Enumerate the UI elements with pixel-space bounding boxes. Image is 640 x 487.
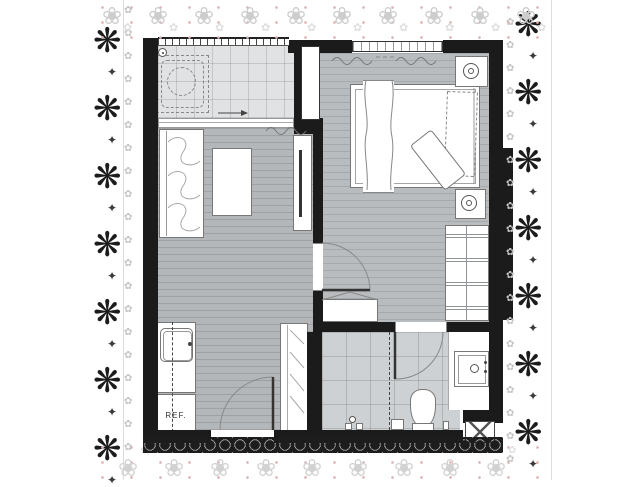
lace-ornament: ✦: [107, 338, 117, 350]
bedroom-window: [352, 41, 443, 52]
lace-ornament: ✿: [506, 18, 514, 28]
bedroom-side-window: [301, 46, 320, 120]
lace-ornament: ❀: [470, 4, 490, 28]
lace-ornament: ✿: [506, 41, 514, 51]
lace-ornament: ✿: [506, 340, 514, 350]
lace-ornament: ✿: [353, 22, 362, 33]
nightstand-bottom-lamp-inner: [466, 200, 472, 206]
lace-ornament: ✿: [124, 98, 132, 108]
lace-ornament: ❀: [210, 456, 230, 480]
lace-ornament: ✿: [124, 167, 132, 177]
shower-head-icon: [349, 416, 356, 423]
lace-ornament: ✿: [506, 409, 514, 419]
lace-ornament: ✿: [124, 6, 132, 16]
lace-ornament: ✿: [445, 22, 454, 33]
lace-ornament: ❋: [93, 160, 122, 194]
lace-ornament: ❀: [118, 456, 138, 480]
lace-ornament: ✦: [107, 270, 117, 282]
kitchen-faucet-icon: [188, 342, 192, 346]
lace-ornament: ❀: [102, 4, 122, 28]
vanity-faucet-icon: [470, 364, 479, 373]
lace-ornament: ✦: [528, 50, 538, 62]
lace-ornament: ✿: [307, 22, 316, 33]
lace-ornament: ❋: [93, 296, 122, 330]
wall-top-right: [443, 40, 490, 53]
lace-ornament: ❀: [194, 4, 214, 28]
washing-machine-drum-icon: [167, 67, 196, 96]
lace-ornament: ❋: [514, 8, 543, 42]
wall-left: [143, 38, 158, 443]
lace-ornament: ❋: [514, 212, 543, 246]
lace-ornament: ✿: [491, 22, 500, 33]
lace-ornament: ✿: [124, 259, 132, 269]
lace-ornament: ❀: [440, 456, 460, 480]
lace-ornament: ✿: [506, 110, 514, 120]
lace-ornament: ✿: [124, 144, 132, 154]
lace-ornament: ❋: [514, 144, 543, 178]
shower-drain-box: [391, 419, 404, 430]
lace-ornament: ✿: [124, 420, 132, 430]
lace-ornament: ✦: [528, 390, 538, 402]
lace-ornament: ❀: [486, 456, 506, 480]
shower-mixer-left: [345, 423, 352, 430]
lace-border-left: ❋✦❋✦❋✦❋✦❋✦❋✦❋✦✿✿✿✿✿✿✿✿✿✿✿✿✿✿✿✿✿✿✿✿: [88, 0, 135, 480]
lace-ornament: ✿: [124, 190, 132, 200]
tv-console: [293, 135, 312, 231]
lace-ornament: ✦: [528, 254, 538, 266]
bedroom-door-opening: [313, 243, 323, 291]
lace-ornament: ❀: [256, 456, 276, 480]
entry-closet: [280, 323, 308, 437]
lace-ornament: ✦: [107, 134, 117, 146]
bedroom-entry-cabinet: [322, 299, 378, 322]
lace-ornament: ✿: [124, 121, 132, 131]
lace-ornament: ✿: [123, 22, 132, 33]
lace-ornament: ✿: [506, 363, 514, 373]
lace-inner-guide-right: [551, 0, 552, 480]
kitchen-sink-basin: [163, 331, 192, 361]
bed-blanket: [363, 80, 394, 193]
lace-ornament: ✿: [506, 432, 514, 442]
lace-ornament: ✿: [261, 22, 270, 33]
lace-ornament: ✿: [124, 213, 132, 223]
lace-ornament: ✿: [124, 443, 132, 453]
lace-ornament: ✦: [107, 474, 117, 486]
nightstand-top-lamp-inner: [468, 68, 474, 74]
lace-ornament: ✿: [124, 305, 132, 315]
lace-ornament: ✦: [528, 186, 538, 198]
bathroom-door-opening: [395, 322, 447, 332]
lace-ornament: ❋: [93, 432, 122, 466]
lace-ornament: ❋: [514, 76, 543, 110]
lace-ornament: ✦: [528, 458, 538, 470]
lace-ornament: ❋: [93, 92, 122, 126]
lace-ornament: ✿: [506, 455, 514, 465]
lace-ornament: ❋: [93, 364, 122, 398]
lace-ornament: ✿: [124, 282, 132, 292]
toilet-bowl-icon: [410, 389, 436, 426]
lace-ornament: ✿: [506, 386, 514, 396]
vanity-tap-dot-2: [484, 370, 487, 373]
lace-ornament: ❀: [302, 456, 322, 480]
lace-ornament: ❋: [514, 280, 543, 314]
balcony-railing: [158, 37, 289, 46]
lace-ornament: ✿: [124, 397, 132, 407]
wall-bedroom-bathroom-right: [447, 322, 490, 332]
lace-ornament: ✿: [537, 22, 546, 33]
entry-closet-divider: [287, 325, 288, 435]
vanity-tap-dot-1: [484, 361, 487, 364]
lace-scallop-row: [143, 437, 503, 453]
lace-ornament: ❀: [148, 4, 168, 28]
tv-panel: [299, 150, 302, 217]
lace-ornament: ✿: [124, 75, 132, 85]
wall-right: [489, 40, 503, 423]
lace-ornament: ❀: [394, 456, 414, 480]
lace-ornament: ❋: [514, 416, 543, 450]
coffee-table: [212, 148, 252, 216]
lace-ornament: ✿: [124, 236, 132, 246]
lace-ornament: ❋: [93, 24, 122, 58]
lace-ornament: ✿: [506, 64, 514, 74]
shower-partition-dashed: [389, 332, 390, 430]
bathroom-floor: [322, 332, 460, 430]
lace-ornament: ✿: [215, 22, 224, 33]
floor-plan-image: REF.: [0, 0, 640, 480]
lace-ornament: ❀: [286, 4, 306, 28]
wall-right-step: [502, 148, 513, 320]
lace-ornament: ✿: [506, 133, 514, 143]
lace-ornament: ❀: [348, 456, 368, 480]
lace-ornament: ❋: [93, 228, 122, 262]
lace-border-top: ❀✿❀✿❀✿❀✿❀✿❀✿❀✿❀✿❀✿❀✿: [88, 0, 552, 40]
wall-bedroom-bathroom-left: [313, 322, 395, 332]
lace-ornament: ❀: [424, 4, 444, 28]
shower-mixer-right: [356, 423, 363, 430]
lace-ornament: ✿: [124, 351, 132, 361]
wall-living-bedroom-lower: [313, 291, 323, 323]
toilet-paper-holder: [443, 421, 449, 430]
sofa-back-line: [166, 131, 167, 236]
lace-ornament: ✦: [107, 406, 117, 418]
lace-ornament: ✦: [107, 202, 117, 214]
lace-ornament: ✿: [124, 52, 132, 62]
lace-ornament: ❋: [514, 348, 543, 382]
lace-ornament: ✿: [124, 374, 132, 384]
lace-ornament: ✦: [528, 118, 538, 130]
wall-bathroom-west: [307, 332, 322, 430]
lace-ornament: ✿: [508, 446, 516, 456]
lace-ornament: ❀: [164, 456, 184, 480]
wall-living-bedroom-upper: [313, 134, 323, 243]
lace-ornament: ✿: [506, 87, 514, 97]
lace-ornament: ✿: [399, 22, 408, 33]
kitchen-upper-cabinet-dashed-line: [172, 322, 173, 437]
lace-ornament: ❀: [516, 4, 536, 28]
lace-ornament: ❀: [332, 4, 352, 28]
lace-ornament: ✿: [124, 328, 132, 338]
lace-ornament: ✦: [528, 322, 538, 334]
wall-junction-balcony-living: [294, 118, 323, 134]
lace-ornament: ❀: [240, 4, 260, 28]
bedroom-wardrobe-shelves: [445, 225, 489, 321]
floor-drain-dot: [162, 52, 164, 54]
balcony-sliding-door: [158, 118, 294, 128]
lace-ornament: ✦: [107, 66, 117, 78]
lace-ornament: ✿: [124, 29, 132, 39]
lace-inner-guide-left: [123, 0, 124, 480]
lace-ornament: ❀: [378, 4, 398, 28]
lace-ornament: ✿: [169, 22, 178, 33]
